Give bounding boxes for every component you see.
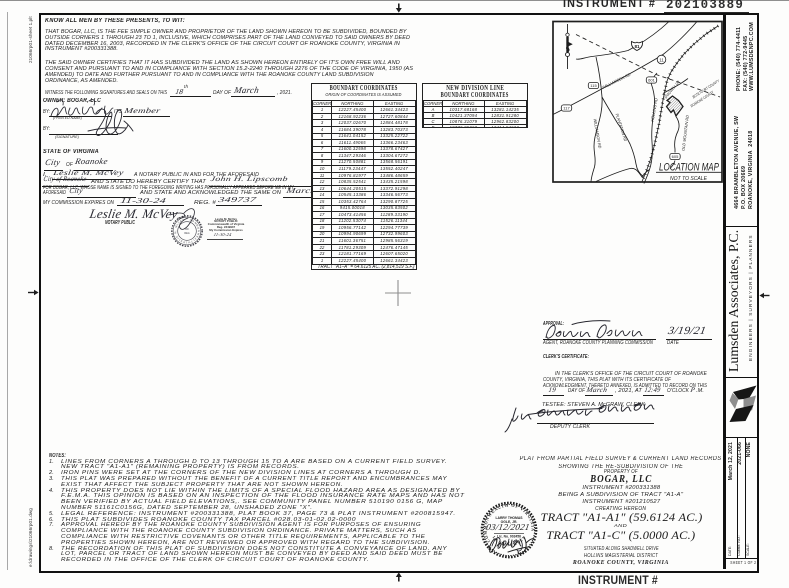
svg-text:NOT TO SCALE: NOT TO SCALE bbox=[670, 176, 707, 182]
svg-text:OF: OF bbox=[185, 227, 189, 231]
svg-text:LOCATION MAP: LOCATION MAP bbox=[659, 162, 719, 174]
svg-text:115: 115 bbox=[590, 83, 597, 88]
svg-text:REG: REG bbox=[184, 232, 189, 235]
svg-text:11: 11 bbox=[659, 57, 664, 62]
svg-text:Lic. No. 002456: Lic. No. 002456 bbox=[497, 535, 521, 539]
svg-text:117: 117 bbox=[563, 106, 570, 111]
svg-text:LAND SURVEYOR: LAND SURVEYOR bbox=[0, 0, 527, 547]
svg-text:OLD MOUNTAIN RD: OLD MOUNTAIN RD bbox=[681, 115, 690, 151]
svg-text:605: 605 bbox=[672, 154, 679, 159]
svg-text:WILLIAMSON RD: WILLIAMSON RD bbox=[601, 72, 631, 90]
svg-text:LESLIE M. McVEY · COMMONWEALTH: LESLIE M. McVEY · COMMONWEALTH OF VIRGIN… bbox=[0, 0, 200, 244]
svg-text:601: 601 bbox=[648, 78, 655, 83]
svg-text:HOLLINS RD: HOLLINS RD bbox=[650, 98, 659, 123]
svg-text:81: 81 bbox=[634, 44, 640, 49]
svg-text:PLANTATION RD: PLANTATION RD bbox=[615, 113, 629, 142]
